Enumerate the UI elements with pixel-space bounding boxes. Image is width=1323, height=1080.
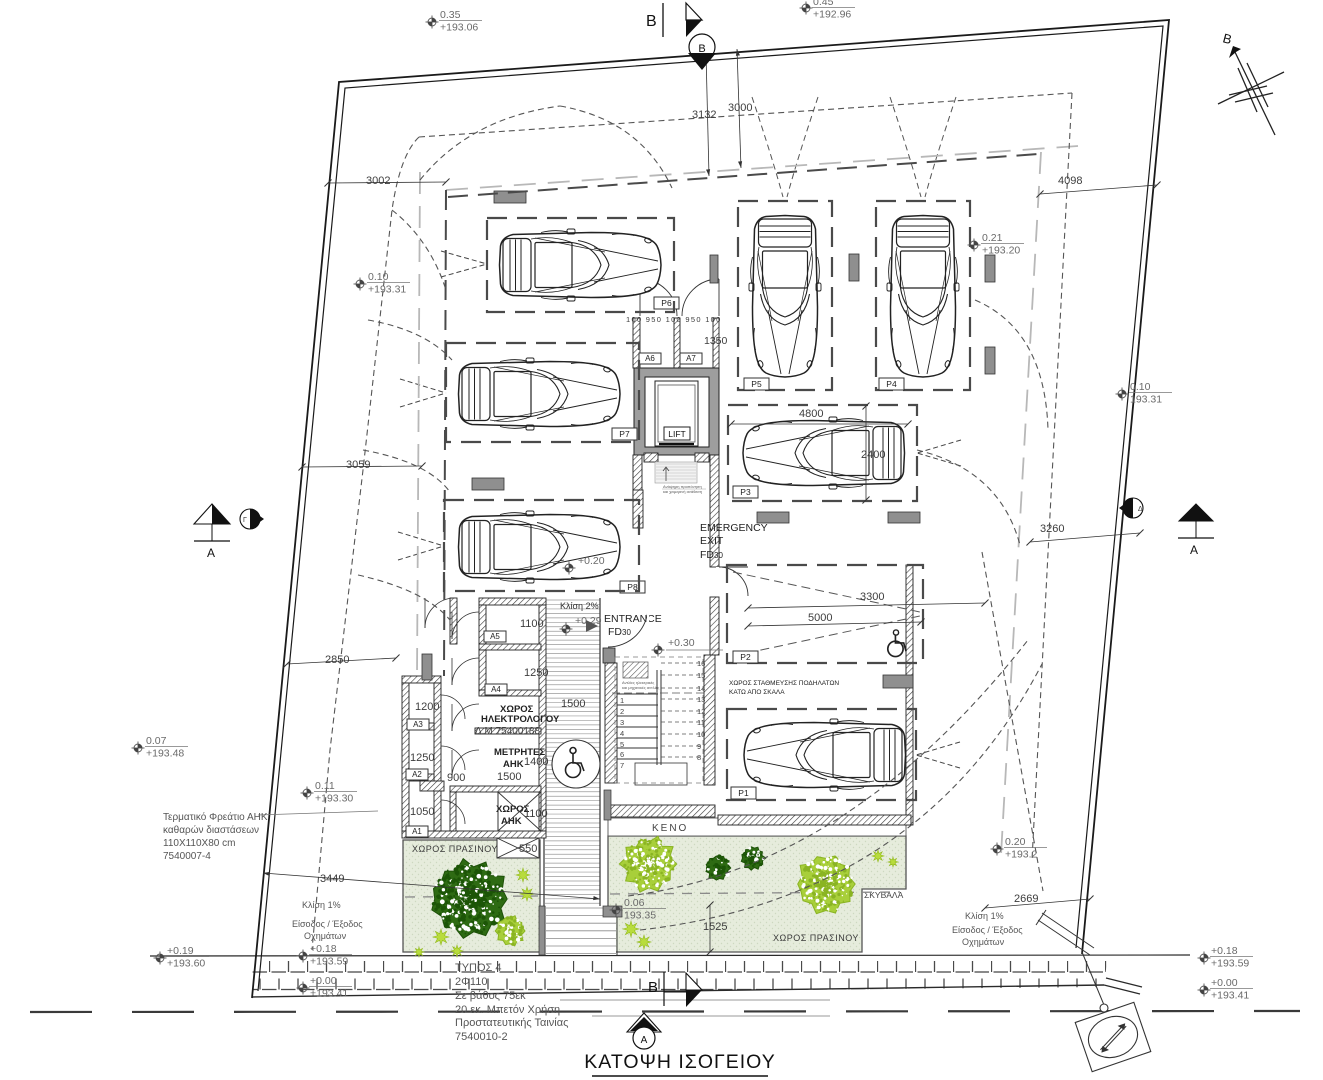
svg-text:+193.06: +193.06 [440,22,478,34]
svg-text:ΧΩΡΟΣ ΣΤΑΘΜΕΥΣΗΣ ΠΟΔΗΛΑΤΩΝ: ΧΩΡΟΣ ΣΤΑΘΜΕΥΣΗΣ ΠΟΔΗΛΑΤΩΝ [729,680,839,687]
svg-text:Κλίση 1%: Κλίση 1% [302,900,341,910]
svg-text:και μηχανικές αντλίες: και μηχανικές αντλίες [622,685,659,690]
svg-text:A: A [1190,543,1198,557]
svg-text:Οχημάτων: Οχημάτων [962,937,1005,947]
svg-text:110Χ110Χ80 cm: 110Χ110Χ80 cm [163,838,235,849]
svg-text:+193.20: +193.20 [982,245,1020,257]
svg-text:P7: P7 [619,429,630,439]
svg-text:10: 10 [697,730,705,739]
svg-text:ΧΩΡΟΣ ΠΡΑΣΙΝΟΥ: ΧΩΡΟΣ ΠΡΑΣΙΝΟΥ [412,844,498,854]
svg-text:+0.18: +0.18 [310,943,337,955]
svg-text:3059: 3059 [346,459,370,471]
svg-text:1200: 1200 [415,701,439,713]
svg-text:P2: P2 [740,652,751,662]
svg-text:και χειμερινή ανάθεση: και χειμερινή ανάθεση [663,489,702,494]
svg-text:7540010-2: 7540010-2 [455,1031,508,1043]
svg-text:+193.41: +193.41 [310,988,348,1000]
svg-text:4800: 4800 [799,408,823,420]
svg-text:2850: 2850 [325,654,349,666]
svg-text:9: 9 [697,742,701,751]
svg-text:900: 900 [447,772,465,784]
svg-text:A: A [641,1035,648,1046]
svg-text:A2: A2 [412,770,422,779]
svg-text:P5: P5 [751,379,762,389]
svg-text:193.31: 193.31 [1130,394,1162,406]
svg-text:15: 15 [697,671,705,680]
svg-text:Κλίση 1%: Κλίση 1% [965,911,1004,921]
svg-text:+0.19: +0.19 [167,945,194,957]
svg-text:100 950 100 950 100: 100 950 100 950 100 [626,315,722,324]
svg-text:6: 6 [620,750,624,759]
svg-text:0.45: 0.45 [813,0,834,8]
svg-text:1500: 1500 [497,771,521,783]
svg-text:4098: 4098 [1058,175,1082,187]
svg-text:A4: A4 [491,685,501,694]
svg-text:12: 12 [697,707,705,716]
svg-text:0.07: 0.07 [146,735,167,747]
svg-text:+193.2: +193.2 [1005,849,1038,861]
svg-text:1050: 1050 [410,806,434,818]
svg-text:3260: 3260 [1040,523,1064,535]
svg-text:+193.41: +193.41 [1211,990,1249,1002]
svg-text:13: 13 [697,695,705,704]
svg-text:2669: 2669 [1014,893,1038,905]
svg-text:Γ: Γ [243,517,247,524]
svg-text:0.10: 0.10 [1130,381,1151,393]
svg-text:+193.59: +193.59 [1211,958,1249,970]
svg-text:Σε βάθος 75εκ: Σε βάθος 75εκ [455,990,526,1002]
svg-text:1250: 1250 [524,667,548,679]
svg-text:Δ: Δ [1138,506,1143,513]
svg-text:+193.60: +193.60 [167,958,205,970]
svg-text:193.35: 193.35 [624,910,656,922]
svg-text:4: 4 [620,729,624,738]
svg-text:0.35: 0.35 [440,9,461,21]
svg-text:B: B [646,13,657,30]
svg-text:ENTRANCE: ENTRANCE [604,613,662,625]
svg-text:Είσοδος / Έξοδος: Είσοδος / Έξοδος [292,919,363,929]
svg-text:A1: A1 [412,827,422,836]
svg-text:+0.18: +0.18 [1211,945,1238,957]
svg-text:+0.20: +0.20 [578,555,605,567]
svg-text:2400: 2400 [861,449,885,461]
svg-text:+193.48: +193.48 [146,748,184,760]
svg-text:7: 7 [620,761,624,770]
svg-text:P4: P4 [886,379,897,389]
svg-text:5000: 5000 [808,612,832,624]
svg-text:1100: 1100 [520,618,544,630]
svg-text:+193.59: +193.59 [310,956,348,968]
svg-text:0.10: 0.10 [368,271,389,283]
svg-text:+193.30: +193.30 [315,793,353,805]
svg-text:3300: 3300 [860,591,884,603]
svg-text:3000: 3000 [728,102,752,114]
svg-text:ΧΩΡΟΣ ΠΡΑΣΙΝΟΥ: ΧΩΡΟΣ ΠΡΑΣΙΝΟΥ [773,933,859,943]
svg-text:2: 2 [620,707,624,716]
svg-text:1250: 1250 [410,752,434,764]
svg-text:EMERGENCY: EMERGENCY [700,522,768,534]
svg-text:ΚΑΤΟΨΗ ΙΣΟΓΕΙΟΥ: ΚΑΤΟΨΗ ΙΣΟΓΕΙΟΥ [584,1051,775,1073]
svg-text:FD: FD [608,626,622,638]
svg-text:11: 11 [697,718,705,727]
svg-text:16: 16 [697,659,705,668]
svg-text:1400: 1400 [524,756,548,768]
svg-text:3: 3 [620,718,624,727]
svg-text:ΤΥΠΟΣ 4: ΤΥΠΟΣ 4 [455,962,502,974]
svg-text:2Φ110: 2Φ110 [455,976,487,988]
svg-text:8: 8 [697,753,701,762]
svg-text:Δ.M 75400188: Δ.M 75400188 [475,726,540,737]
svg-text:P6: P6 [661,298,672,308]
svg-text:0.21: 0.21 [982,232,1003,244]
svg-text:A3: A3 [413,720,423,729]
svg-text:ΑΗΚ: ΑΗΚ [503,759,524,770]
svg-text:Προστατευτικής Ταινίας: Προστατευτικής Ταινίας [455,1017,568,1029]
svg-text:LIFT: LIFT [668,429,685,439]
svg-text:B: B [648,979,658,996]
svg-text:1525: 1525 [703,921,727,933]
svg-text:ΗΛΕΚΤΡΟΛΟΓΟΥ: ΗΛΕΚΤΡΟΛΟΓΟΥ [481,714,560,725]
svg-text:+192.96: +192.96 [813,9,851,21]
svg-text:P3: P3 [740,487,751,497]
svg-text:Οχημάτων: Οχημάτων [304,931,347,941]
svg-text:P1: P1 [738,788,749,798]
svg-text:+0.00: +0.00 [310,975,337,987]
svg-text:1350: 1350 [704,335,728,347]
svg-text:1: 1 [620,696,624,705]
svg-text:7540007-4: 7540007-4 [163,851,211,862]
svg-text:FD: FD [700,549,714,561]
svg-text:Κλίση 2%: Κλίση 2% [560,601,599,611]
svg-text:A5: A5 [490,632,500,641]
svg-text:A7: A7 [686,354,696,363]
svg-text:καθαρών διαστάσεων: καθαρών διαστάσεων [163,824,259,836]
svg-text:550: 550 [519,843,537,855]
svg-text:A6: A6 [645,354,655,363]
svg-text:3132: 3132 [692,109,716,121]
svg-text:A: A [207,546,215,560]
svg-text:0.11: 0.11 [315,780,335,792]
svg-text:20 εκ. Μπετόν Χρήση: 20 εκ. Μπετόν Χρήση [455,1004,560,1016]
svg-text:1500: 1500 [561,698,585,710]
svg-text:0.06: 0.06 [624,897,645,909]
svg-text:EXIT: EXIT [700,535,724,547]
svg-text:14: 14 [697,684,705,693]
svg-text:Τερματικό Φρεάτιο ΑΗΚ: Τερματικό Φρεάτιο ΑΗΚ [163,811,268,823]
svg-text:ΚΑΤΩ ΑΠΟ ΣΚΑΛΑ: ΚΑΤΩ ΑΠΟ ΣΚΑΛΑ [729,689,785,696]
svg-text:30: 30 [622,628,631,637]
svg-text:+0.30: +0.30 [668,637,695,649]
svg-text:3002: 3002 [366,175,390,187]
svg-text:Είσοδος / Έξοδος: Είσοδος / Έξοδος [952,925,1023,935]
svg-text:+0.00: +0.00 [1211,977,1238,989]
svg-text:30: 30 [714,551,723,560]
svg-text:+193.31: +193.31 [368,284,406,296]
svg-text:0.20: 0.20 [1005,836,1026,848]
svg-text:KENO: KENO [652,823,688,834]
